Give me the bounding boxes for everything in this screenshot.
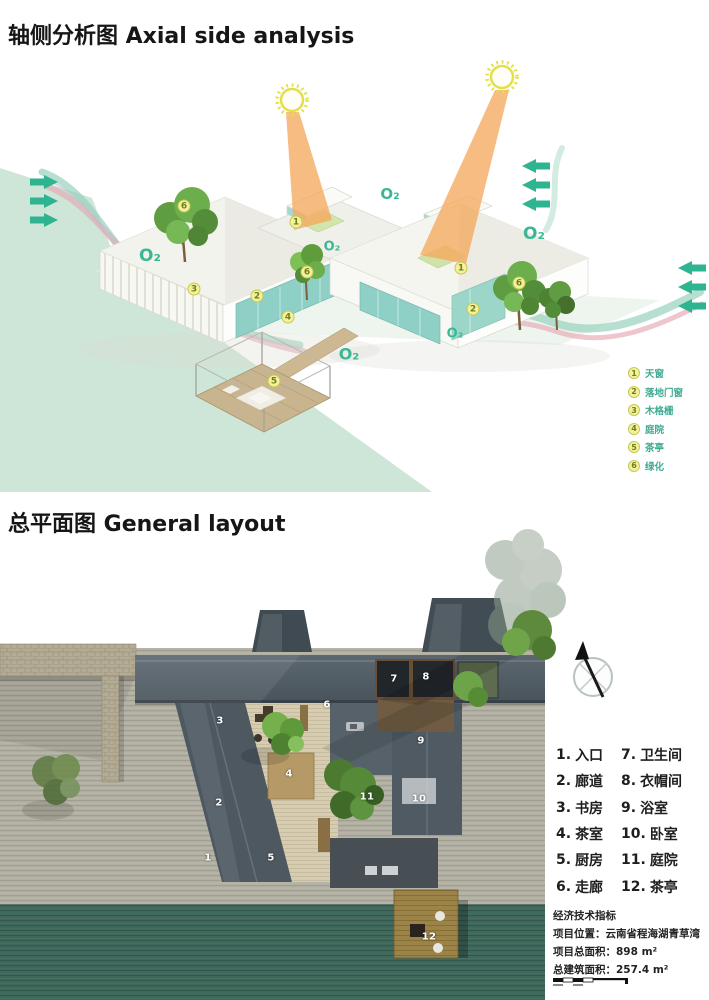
axial-legend-item-4: 4庭院 (628, 423, 683, 435)
legend-label: 庭院 (650, 850, 678, 870)
presentation-board: 轴侧分析图 Axial side analysis 总平面图 General l… (0, 0, 709, 1000)
wind-arrows-left (30, 175, 58, 227)
legend-number: 3. (556, 800, 571, 816)
counter (318, 818, 330, 852)
info-line: 项目总面积：898 m² (553, 944, 709, 962)
legend-number-circle: 6 (628, 460, 640, 472)
legend-label: 入口 (575, 745, 603, 765)
pier-table (410, 924, 425, 937)
plan-legend-left: 1.入口2.廊道3.书房4.茶室5.厨房6.走廊 (556, 742, 603, 900)
legend-label: 走廊 (575, 877, 603, 897)
sun-icon (487, 62, 517, 92)
legend-label: 浴室 (640, 798, 668, 818)
plan-legend-item-6: 6.走廊 (556, 873, 603, 899)
general-layout-plan (0, 529, 628, 1000)
legend-label: 茶亭 (650, 877, 678, 897)
wind-arrows-top-right (522, 159, 550, 211)
legend-number-circle: 5 (628, 441, 640, 453)
north-compass (574, 641, 612, 697)
axial-legend-item-6: 6绿化 (628, 460, 683, 472)
plan-legend-right: 7.卫生间8.衣帽间9.浴室10.卧室11.庭院12.茶亭 (621, 742, 682, 900)
legend-label: 衣帽间 (640, 771, 682, 791)
axial-legend-item-1: 1天窗 (628, 367, 683, 379)
plan-legend-item-8: 8.衣帽间 (621, 768, 682, 794)
axial-legend-item-5: 5茶亭 (628, 441, 683, 453)
plan-legend-item-3: 3.书房 (556, 795, 603, 821)
plan-section-title: 总平面图 General layout (8, 506, 285, 538)
legend-number: 11. (621, 852, 646, 868)
plan-legend-item-9: 9.浴室 (621, 795, 682, 821)
kitchen-roof (330, 838, 438, 888)
legend-number: 1. (556, 747, 571, 763)
stone-wall (0, 644, 136, 676)
legend-number: 8. (621, 773, 636, 789)
legend-number: 9. (621, 800, 636, 816)
plan-legend-item-4: 4.茶室 (556, 821, 603, 847)
tea-pier (394, 890, 458, 958)
legend-label: 庭院 (645, 422, 664, 436)
building-shadow (330, 340, 610, 372)
plan-legend-item-5: 5.厨房 (556, 847, 603, 873)
legend-label: 天窗 (645, 366, 664, 380)
plan-legend-item-12: 12.茶亭 (621, 873, 682, 899)
legend-label: 卫生间 (640, 745, 682, 765)
sun-icon (277, 85, 307, 115)
legend-label: 落地门窗 (645, 385, 683, 399)
legend-label: 绿化 (645, 459, 664, 473)
legend-number-circle: 4 (628, 423, 640, 435)
legend-label: 茶室 (575, 824, 603, 844)
legend-number: 10. (621, 826, 646, 842)
info-line: 项目位置：云南省程海湖青草湾 (553, 926, 709, 944)
legend-number-circle: 2 (628, 386, 640, 398)
legend-label: 厨房 (575, 850, 603, 870)
legend-label: 木格栅 (645, 403, 674, 417)
info-lines: 项目位置：云南省程海湖青草湾项目总面积：898 m²总建筑面积：257.4 m² (553, 926, 709, 980)
plan-legend-item-10: 10.卧室 (621, 821, 682, 847)
legend-number-circle: 3 (628, 404, 640, 416)
legend-label: 廊道 (575, 771, 603, 791)
axial-legend: 1天窗2落地门窗3木格栅4庭院5茶亭6绿化 (628, 367, 683, 478)
plan-legend-item-7: 7.卫生间 (621, 742, 682, 768)
plan-legend-item-2: 2.廊道 (556, 768, 603, 794)
plan-legend-item-1: 1.入口 (556, 742, 603, 768)
axial-legend-item-3: 3木格栅 (628, 404, 683, 416)
axial-section-title: 轴侧分析图 Axial side analysis (8, 18, 354, 50)
plan-legend-item-11: 11.庭院 (621, 847, 682, 873)
legend-label: 卧室 (650, 824, 678, 844)
info-heading: 经济技术指标 (553, 908, 709, 926)
legend-number: 6. (556, 879, 571, 895)
legend-number: 12. (621, 879, 646, 895)
axial-diagram (0, 62, 706, 492)
axial-legend-item-2: 2落地门窗 (628, 386, 683, 398)
legend-label: 书房 (575, 798, 603, 818)
legend-number: 5. (556, 852, 571, 868)
legend-number: 4. (556, 826, 571, 842)
stone-wall (102, 676, 119, 782)
sunlight-beam (286, 112, 332, 230)
project-info-block: 经济技术指标 项目位置：云南省程海湖青草湾项目总面积：898 m²总建筑面积：2… (553, 908, 709, 980)
legend-number: 2. (556, 773, 571, 789)
wind-arrows-far-right (678, 261, 706, 313)
bed (402, 778, 436, 804)
info-line: 总建筑面积：257.4 m² (553, 962, 709, 980)
legend-number-circle: 1 (628, 367, 640, 379)
legend-label: 茶亭 (645, 440, 664, 454)
legend-number: 7. (621, 747, 636, 763)
